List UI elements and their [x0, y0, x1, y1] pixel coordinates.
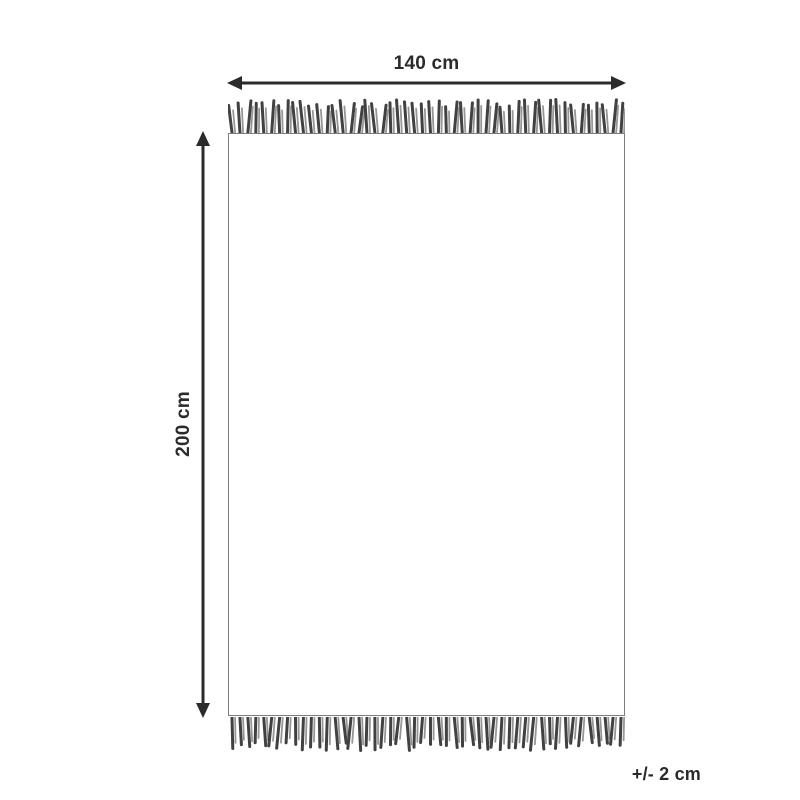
height-dimension-label: 200 cm [173, 391, 195, 457]
rug-outline [228, 133, 625, 716]
rug-fringe-top [228, 97, 625, 133]
height-dimension-arrow [194, 131, 212, 718]
width-dimension-arrow [227, 74, 626, 92]
tolerance-label: +/- 2 cm [632, 764, 701, 785]
width-dimension-label: 140 cm [228, 53, 625, 75]
width-arrowhead-left-icon [227, 76, 242, 90]
height-arrowhead-bottom-icon [196, 703, 210, 718]
product-dimension-diagram: 140 cm 200 cm +/- 2 cm [0, 0, 800, 800]
height-arrowhead-top-icon [196, 131, 210, 146]
width-arrowhead-right-icon [611, 76, 626, 90]
rug-fringe-bottom [228, 717, 625, 753]
